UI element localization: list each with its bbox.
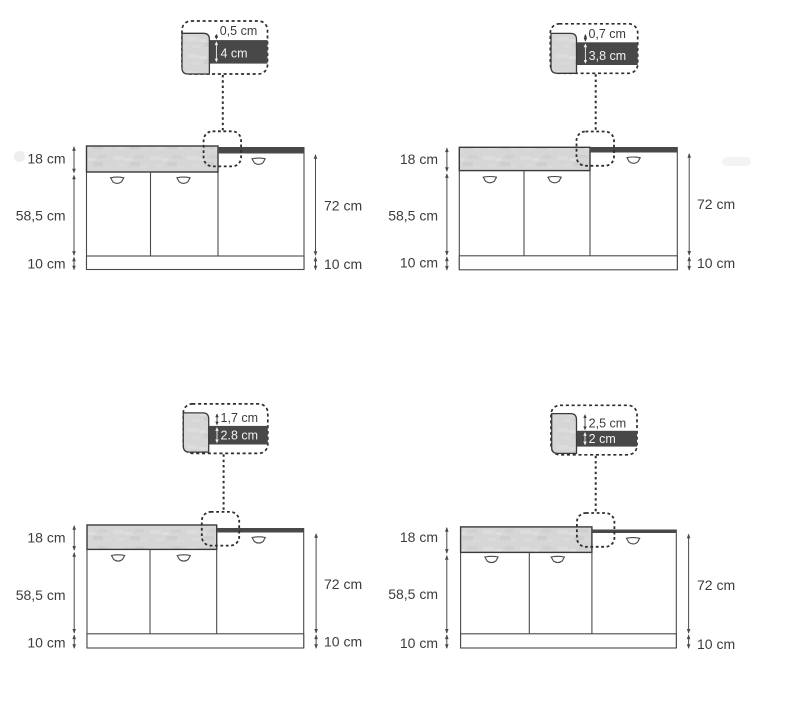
svg-text:58,5 cm: 58,5 cm	[388, 207, 438, 223]
svg-text:10 cm: 10 cm	[697, 255, 735, 271]
svg-text:4 cm: 4 cm	[220, 46, 247, 60]
svg-text:1,7 cm: 1,7 cm	[221, 411, 259, 425]
svg-text:58,5 cm: 58,5 cm	[16, 207, 66, 223]
svg-text:18 cm: 18 cm	[400, 529, 438, 545]
svg-text:18 cm: 18 cm	[27, 530, 65, 546]
svg-text:10 cm: 10 cm	[697, 636, 735, 652]
svg-text:10 cm: 10 cm	[400, 635, 438, 651]
svg-text:3,8 cm: 3,8 cm	[589, 49, 627, 63]
svg-text:2.8 cm: 2.8 cm	[221, 429, 259, 443]
svg-text:72 cm: 72 cm	[697, 196, 735, 212]
svg-text:58,5 cm: 58,5 cm	[388, 586, 438, 602]
svg-text:2,5 cm: 2,5 cm	[589, 416, 627, 430]
svg-text:10 cm: 10 cm	[400, 254, 438, 270]
svg-text:18 cm: 18 cm	[27, 151, 65, 167]
svg-text:72 cm: 72 cm	[324, 576, 362, 592]
svg-text:18 cm: 18 cm	[400, 151, 438, 167]
svg-text:10 cm: 10 cm	[324, 256, 362, 272]
svg-text:72 cm: 72 cm	[324, 198, 362, 214]
svg-text:58,5 cm: 58,5 cm	[16, 587, 66, 603]
svg-text:10 cm: 10 cm	[324, 634, 362, 650]
svg-text:2 cm: 2 cm	[589, 432, 616, 446]
svg-text:0,5 cm: 0,5 cm	[220, 24, 258, 38]
svg-text:0,7 cm: 0,7 cm	[588, 27, 626, 41]
svg-text:72 cm: 72 cm	[697, 577, 735, 593]
svg-text:10 cm: 10 cm	[27, 256, 65, 272]
svg-text:10 cm: 10 cm	[27, 635, 65, 651]
